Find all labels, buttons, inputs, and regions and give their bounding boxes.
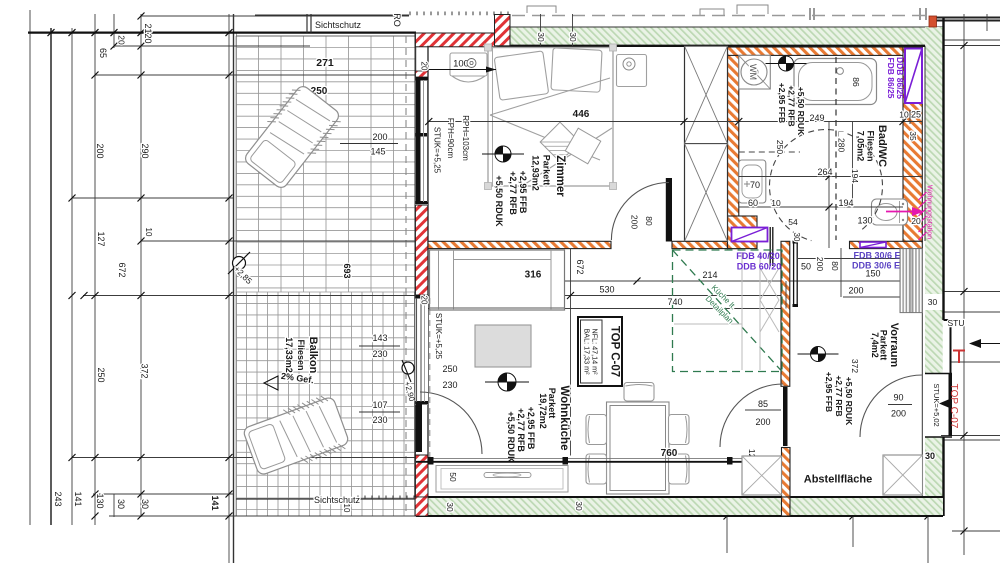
svg-text:STUK=+5,25: STUK=+5,25	[434, 313, 443, 360]
svg-text:141: 141	[73, 491, 83, 506]
svg-text:2120: 2120	[143, 23, 153, 43]
svg-text:130: 130	[95, 493, 105, 508]
svg-text:107: 107	[372, 400, 387, 410]
svg-text:DDB 60/20: DDB 60/20	[737, 262, 782, 272]
svg-text:Sichtschutz: Sichtschutz	[314, 495, 361, 505]
svg-text:+2,77 RFB: +2,77 RFB	[834, 375, 844, 416]
svg-text:DDB 30/6 E: DDB 30/6 E	[852, 261, 900, 271]
svg-text:Fliesen: Fliesen	[866, 130, 876, 161]
svg-text:249: 249	[809, 113, 824, 123]
svg-text:7,4m2: 7,4m2	[870, 332, 880, 358]
svg-text:200: 200	[630, 215, 640, 229]
svg-text:+5,50 RDUK: +5,50 RDUK	[844, 377, 854, 426]
svg-text:10: 10	[771, 198, 781, 208]
svg-text:271: 271	[316, 57, 334, 69]
svg-text:+2,77 RFB: +2,77 RFB	[508, 171, 518, 215]
svg-text:200: 200	[755, 417, 770, 427]
svg-text:+2,77 RFB: +2,77 RFB	[787, 85, 797, 126]
svg-text:100: 100	[453, 59, 469, 70]
svg-text:Bad/WC: Bad/WC	[876, 125, 888, 167]
svg-text:50: 50	[801, 262, 811, 272]
svg-text:20: 20	[117, 35, 127, 45]
svg-text:BAL: 17,33 m²: BAL: 17,33 m²	[583, 329, 592, 376]
svg-text:10: 10	[899, 110, 909, 120]
svg-text:214: 214	[702, 270, 717, 280]
svg-text:Abstellfläche: Abstellfläche	[804, 474, 872, 486]
svg-text:STUK=+5,25: STUK=+5,25	[433, 127, 442, 174]
svg-text:WM: WM	[748, 64, 758, 80]
svg-text:316: 316	[525, 270, 542, 281]
svg-text:FDB 40/20: FDB 40/20	[736, 251, 780, 261]
svg-text:672: 672	[117, 262, 127, 277]
svg-text:250: 250	[96, 367, 106, 382]
svg-text:STUK=+5,02: STUK=+5,02	[932, 383, 941, 426]
svg-text:230: 230	[372, 349, 387, 359]
svg-text:230: 230	[442, 380, 457, 390]
svg-text:+2,95 FFB: +2,95 FFB	[518, 171, 528, 214]
svg-text:FPH=90cm: FPH=90cm	[446, 118, 455, 159]
svg-text:+2,95 FFB: +2,95 FFB	[526, 407, 536, 450]
svg-text:20: 20	[911, 216, 921, 226]
svg-text:DDB 86/25: DDB 86/25	[895, 57, 905, 99]
svg-text:672: 672	[575, 259, 585, 274]
svg-text:20: 20	[420, 296, 429, 305]
svg-text:372: 372	[850, 359, 860, 373]
svg-text:Balkon: Balkon	[307, 337, 319, 374]
svg-text:Wohnungsstation: Wohnungsstation	[926, 185, 933, 239]
svg-text:30: 30	[574, 501, 584, 511]
svg-text:30: 30	[925, 451, 935, 461]
svg-text:143: 143	[372, 333, 387, 343]
svg-text:130: 130	[857, 216, 872, 226]
svg-text:30: 30	[792, 233, 801, 242]
svg-text:243: 243	[53, 491, 63, 506]
svg-text:230: 230	[372, 415, 387, 425]
svg-text:446: 446	[573, 109, 590, 120]
svg-text:30: 30	[536, 32, 546, 42]
svg-text:200: 200	[372, 132, 387, 142]
svg-text:530: 530	[599, 285, 614, 295]
svg-text:Fliesen: Fliesen	[296, 339, 306, 370]
svg-text:Wohnküche: Wohnküche	[558, 386, 570, 451]
svg-text:80: 80	[644, 216, 654, 226]
svg-text:RO: RO	[392, 13, 402, 27]
svg-text:194: 194	[850, 169, 860, 183]
svg-text:TOP C-07: TOP C-07	[948, 384, 959, 429]
svg-text:60: 60	[748, 198, 758, 208]
svg-text:30: 30	[928, 297, 938, 307]
svg-text:127: 127	[96, 231, 106, 246]
svg-text:+5,50 RDUK: +5,50 RDUK	[506, 411, 516, 463]
svg-text:80: 80	[830, 261, 840, 271]
svg-text:Sichtschutz: Sichtschutz	[315, 20, 362, 30]
svg-text:200: 200	[95, 143, 105, 158]
svg-text:12,93m2: 12,93m2	[531, 155, 541, 191]
svg-text:STU: STU	[948, 318, 965, 328]
svg-text:25: 25	[911, 110, 921, 120]
svg-text:90: 90	[893, 393, 903, 403]
svg-text:+2,95 FFB: +2,95 FFB	[777, 83, 787, 123]
svg-text:693: 693	[342, 263, 352, 278]
svg-text:70: 70	[750, 180, 760, 190]
svg-text:10: 10	[144, 228, 153, 237]
svg-text:RPH=103cm: RPH=103cm	[461, 115, 470, 161]
svg-text:19,72m2: 19,72m2	[538, 393, 548, 429]
svg-text:290: 290	[140, 143, 150, 158]
svg-text:200: 200	[815, 257, 825, 271]
svg-text:Vorraum: Vorraum	[888, 323, 900, 368]
svg-text:200: 200	[891, 409, 906, 419]
svg-text:264: 264	[817, 167, 832, 177]
svg-text:200: 200	[848, 286, 863, 296]
svg-text:372: 372	[140, 363, 150, 378]
svg-text:10: 10	[342, 504, 351, 513]
svg-text:30: 30	[568, 32, 578, 42]
svg-text:FDB 30/6 E: FDB 30/6 E	[853, 251, 900, 261]
svg-text:7,05m2: 7,05m2	[856, 131, 866, 162]
svg-text:194: 194	[838, 198, 853, 208]
svg-text:17,33m2: 17,33m2	[284, 337, 294, 373]
svg-text:54: 54	[788, 217, 798, 227]
svg-text:Zimmer: Zimmer	[554, 155, 566, 197]
svg-text:760: 760	[661, 448, 678, 459]
svg-text:35: 35	[908, 131, 918, 141]
svg-text:+2,95 FFB: +2,95 FFB	[824, 372, 834, 412]
svg-text:145: 145	[370, 147, 385, 157]
svg-text:86: 86	[851, 77, 861, 87]
svg-text:30: 30	[140, 499, 150, 509]
svg-text:TOP C-07: TOP C-07	[609, 326, 621, 377]
svg-text:FDB 86/25: FDB 86/25	[886, 57, 896, 98]
svg-text:85: 85	[758, 399, 768, 409]
svg-text:+5,50 RDUK: +5,50 RDUK	[494, 175, 504, 227]
svg-text:250: 250	[442, 364, 457, 374]
svg-text:20: 20	[420, 62, 429, 71]
svg-text:50: 50	[448, 472, 458, 482]
svg-text:250: 250	[775, 140, 785, 154]
svg-text:+2,77 RFB: +2,77 RFB	[516, 408, 526, 452]
svg-text:+5,50 RDUK: +5,50 RDUK	[796, 87, 806, 136]
svg-text:∟280: ∟280	[837, 130, 847, 153]
svg-text:Parkett: Parkett	[542, 155, 552, 186]
svg-text:740: 740	[667, 297, 682, 307]
svg-text:141: 141	[210, 495, 220, 510]
svg-text:30: 30	[116, 499, 126, 509]
svg-text:65: 65	[98, 48, 108, 58]
svg-text:30: 30	[445, 502, 455, 512]
